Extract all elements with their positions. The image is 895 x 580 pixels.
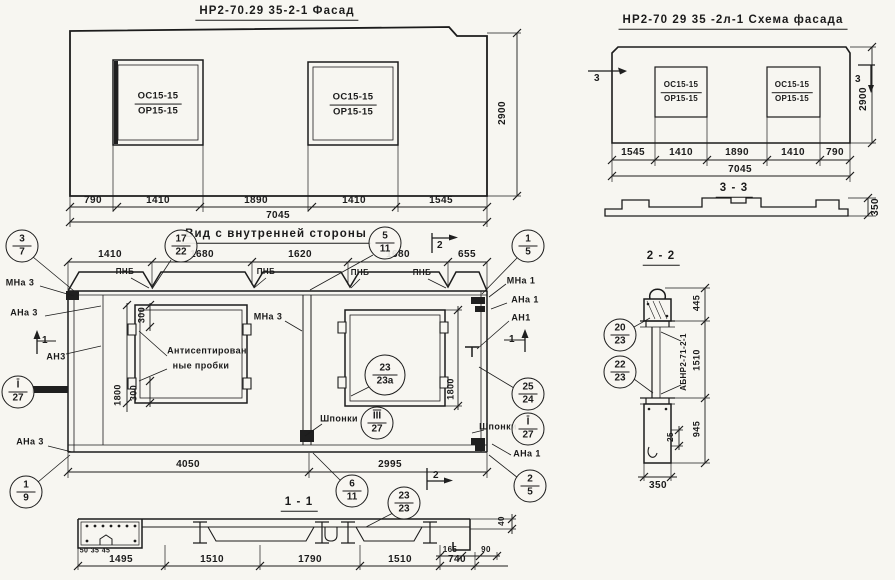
- cut-marker-1: 1: [42, 336, 48, 346]
- dim-label: 740: [448, 555, 466, 565]
- facade-window1-label: ОС15-15 ОР15-15: [135, 91, 182, 118]
- dim-label: 945: [693, 421, 702, 437]
- rib-label-pnb: ПНБ: [116, 268, 134, 276]
- callout-I-27: I 27: [2, 376, 35, 409]
- dim-label: 1890: [244, 196, 268, 206]
- callout-5-11: 5 11: [369, 227, 402, 260]
- anchor-label-ana3: АНа 3: [16, 438, 44, 447]
- anchor-label-ana1: АНа 1: [513, 450, 541, 459]
- rib-label-pnb: ПНБ: [413, 269, 431, 277]
- cut-marker-3-right: 3: [855, 75, 861, 85]
- dim-label: 1545: [621, 148, 645, 158]
- section-1-1-title: 1 - 1: [281, 497, 318, 512]
- dim-label-small: 90: [481, 546, 491, 554]
- dim-label: 1410: [146, 196, 170, 206]
- callout-22-23: 22 23: [604, 356, 637, 389]
- callout-1-9: 1 9: [10, 476, 43, 509]
- section-3-3-title: 3 - 3: [716, 183, 753, 198]
- anchor-label-mna3: МНа 3: [254, 313, 283, 322]
- dim-height-label: 2900: [859, 87, 869, 111]
- callout-3-7: 3 7: [6, 230, 39, 263]
- dim-label: 300: [130, 385, 139, 401]
- dim-label: 1410: [342, 196, 366, 206]
- drawing-linework: [0, 0, 895, 580]
- rib-label-pnb: ПНБ: [257, 268, 275, 276]
- dim-label: 350: [649, 481, 667, 491]
- dim-label: 1410: [98, 250, 122, 260]
- callout-1-5: 1 5: [512, 230, 545, 263]
- blueprint-sheet: НР2-70.29 35-2-1 Фасад ОС15-15 ОР15-15 О…: [0, 0, 895, 580]
- callout-6-11: 6 11: [336, 475, 369, 508]
- facade-title: НР2-70.29 35-2-1 Фасад: [195, 6, 358, 21]
- cut-marker-1: 1: [509, 335, 515, 345]
- dim-label: 790: [84, 196, 102, 206]
- dim-label: 300: [138, 307, 147, 323]
- anchor-label-an3: АН3: [46, 353, 65, 362]
- rib-label-pnb: ПНБ: [351, 269, 369, 277]
- anchor-label-mna1: МНа 1: [507, 277, 536, 286]
- callout-17-22: 17 22: [165, 230, 198, 263]
- dim-height-label: 2900: [498, 101, 508, 125]
- dim-total-label: 7045: [266, 211, 290, 221]
- cut-marker-2: 2: [437, 241, 443, 251]
- note-antiseptic-line2: ные пробки: [173, 362, 230, 371]
- inner-view-title: Вид с внутренней стороны: [181, 229, 371, 244]
- dim-label: 4050: [176, 460, 200, 470]
- dim-label: 1510: [388, 555, 412, 565]
- callout-23-23: 23 23: [388, 487, 421, 520]
- dim-label: 1790: [298, 555, 322, 565]
- dim-label-small: 40: [498, 516, 506, 526]
- dim-label-small: 45: [102, 548, 111, 555]
- cut-marker-3-left: 3: [594, 74, 600, 84]
- callout-III-27: III 27: [361, 407, 394, 440]
- cut-marker-2: 2: [433, 471, 439, 481]
- dim-label: 1510: [693, 349, 702, 371]
- dim-label: 445: [693, 295, 702, 311]
- dim-label: 790: [826, 148, 844, 158]
- callout-20-23: 20 23: [604, 319, 637, 352]
- callout-2-5: 2 5: [514, 470, 547, 503]
- dim-label: 1545: [429, 196, 453, 206]
- dim-label: 1410: [781, 148, 805, 158]
- dim-total-label: 7045: [728, 165, 752, 175]
- dim-label: 1510: [200, 555, 224, 565]
- schema-window2-label: ОС15-15 ОР15-15: [772, 80, 813, 104]
- callout-23-23a: 23 23а: [365, 355, 406, 396]
- dim-label: 1800: [114, 384, 123, 406]
- dim-label-small: 25: [667, 432, 675, 442]
- dim-label: 2995: [378, 460, 402, 470]
- facade-window2-label: ОС15-15 ОР15-15: [330, 92, 377, 119]
- dim-label: 1620: [288, 250, 312, 260]
- dim-label: 1800: [447, 378, 456, 400]
- schema-title: НР2-70 29 35 -2л-1 Схема фасада: [619, 15, 848, 30]
- keys-label: Шпонки: [320, 415, 358, 424]
- callout-I-27: I 27: [512, 413, 545, 446]
- note-antiseptic-line1: Антисептирован: [167, 347, 247, 356]
- anchor-label-an1: АН1: [511, 314, 530, 323]
- dim-label-small: 165: [443, 546, 458, 554]
- schema-window1-label: ОС15-15 ОР15-15: [661, 80, 702, 104]
- anchor-label-ana1: АНа 1: [511, 296, 539, 305]
- dim-label: 1410: [669, 148, 693, 158]
- dim-thickness-label: 350: [871, 198, 881, 216]
- section-2-2-title: 2 - 2: [643, 251, 680, 266]
- callout-25-24: 25 24: [512, 378, 545, 411]
- dim-label-small: 35: [91, 548, 100, 555]
- dim-label: 1890: [725, 148, 749, 158]
- dim-label: 655: [458, 250, 476, 260]
- anchor-label-ana3: АНа 3: [10, 309, 38, 318]
- dim-label-small: 50: [80, 548, 89, 555]
- anchor-label-mna3: МНа 3: [6, 279, 35, 288]
- panel-stamp: АБНР2-71-2-1: [680, 333, 688, 391]
- dim-label: 1495: [109, 555, 133, 565]
